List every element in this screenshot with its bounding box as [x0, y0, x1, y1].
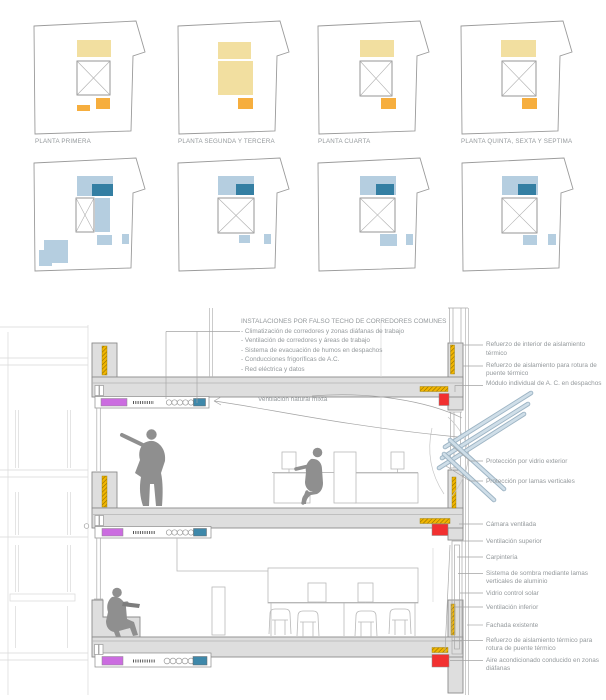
floor-plan-blue-3: [318, 158, 429, 271]
installations-note: INSTALACIONES POR FALSO TECHO DE CORREDO…: [241, 317, 476, 374]
right-annotation-camara-ventilada: Cámara ventilada: [486, 521, 604, 530]
right-annotation-modulo-ac: Módulo individual de A. C. en despachos: [486, 380, 604, 389]
ventilation-label: Ventilación natural mixta: [258, 396, 327, 403]
installations-title: INSTALACIONES POR FALSO TECHO DE CORREDO…: [241, 317, 476, 327]
right-annotation-ventilacion-inferior: Ventilación inferior: [486, 604, 604, 613]
right-annotation-ventilacion-superior: Ventilación superior: [486, 538, 604, 547]
floor-plan-planta-quinta-sexta-septima: [461, 21, 572, 134]
furniture-middle-floor: [272, 452, 418, 503]
furniture-bottom-floor: [268, 568, 418, 637]
standing-person-silhouette: [122, 429, 165, 506]
right-annotation-lamas-verticales: Protección por lamas verticales: [486, 478, 604, 487]
ventilation-arrow: [214, 401, 458, 437]
plan-label-primera: PLANTA PRIMERA: [35, 138, 91, 145]
installations-item: - Conducciones frigoríficas de A.C.: [241, 355, 476, 365]
right-annotation-refuerzo-termico: Refuerzo de aislamiento térmico para rot…: [486, 637, 604, 655]
right-annotation-carpinteria: Carpintería: [486, 554, 604, 563]
right-annotation-vidrio-exterior: Protección por vidrio exterior: [486, 458, 604, 467]
right-annotation-aire-acondicionado: Aire acondicionado conducido en zonas di…: [486, 657, 604, 675]
floor-plan-planta-cuarta: [318, 21, 429, 134]
floor-plan-planta-segunda-tercera: [178, 21, 289, 134]
existing-facade-background: [0, 325, 88, 695]
right-annotation-sistema-sombra: Sistema de sombra mediante lamas vertica…: [486, 570, 604, 588]
floor-plan-blue-2: [178, 158, 289, 271]
seated-person-laptop-silhouette: [106, 588, 140, 637]
plan-label-cuarta: PLANTA CUARTA: [318, 138, 370, 145]
right-annotation-refuerzo-rotura: Refuerzo de aislamiento para rotura de p…: [486, 362, 604, 380]
right-annotation-fachada-existente: Fachada existente: [486, 622, 604, 631]
installations-item: - Red eléctrica y datos: [241, 365, 476, 375]
floor-plan-blue-1: [34, 158, 145, 271]
floor-plan-blue-4: [462, 158, 573, 271]
installations-item: - Climatización de corredores y zonas di…: [241, 327, 476, 337]
right-annotation-vidrio-control: Vidrio control solar: [486, 590, 604, 599]
floor-plan-planta-primera: [34, 21, 145, 134]
plan-label-quinta: PLANTA QUINTA, SEXTA Y SEPTIMA: [461, 138, 572, 145]
right-annotation-refuerzo-interior: Refuerzo de interior de aislamiento térm…: [486, 341, 604, 359]
plan-label-segunda: PLANTA SEGUNDA Y TERCERA: [178, 138, 275, 145]
architectural-sheet: PLANTA PRIMERA PLANTA SEGUNDA Y TERCERA …: [0, 0, 606, 700]
installations-item: - Sistema de evacuación de humos en desp…: [241, 346, 476, 356]
installations-item: - Ventilación de corredores y áreas de t…: [241, 336, 476, 346]
floor-plans-drawing: [0, 0, 606, 300]
